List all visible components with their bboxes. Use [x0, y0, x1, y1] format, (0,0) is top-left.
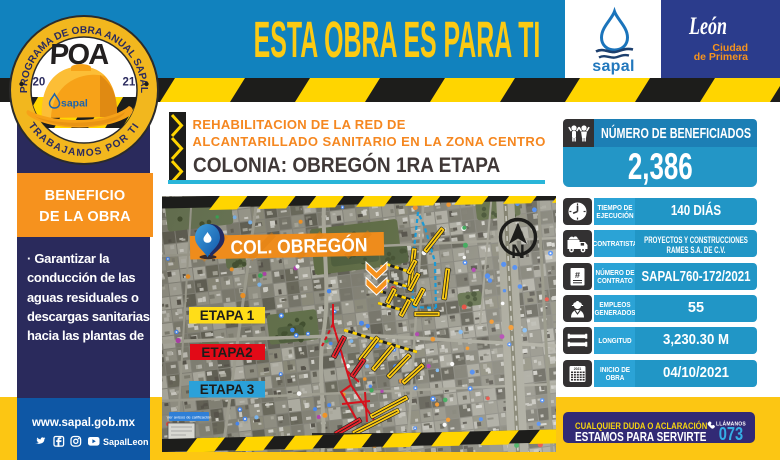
- svg-text:ETAPA 3: ETAPA 3: [200, 382, 255, 397]
- svg-text:21: 21: [123, 77, 136, 89]
- svg-text:ETAPA2: ETAPA2: [201, 345, 252, 360]
- svg-text:#: #: [575, 271, 581, 281]
- svg-text:N: N: [511, 242, 525, 263]
- svg-text:sapal: sapal: [592, 58, 634, 75]
- svg-text:COL. OBREGÓN: COL. OBREGÓN: [230, 233, 367, 258]
- svg-text:ETAPA 1: ETAPA 1: [200, 308, 255, 323]
- svg-text:20: 20: [33, 77, 46, 89]
- svg-text:SapalLeon: SapalLeon: [103, 437, 149, 447]
- svg-text:073: 073: [719, 423, 743, 442]
- svg-text:sapal: sapal: [61, 98, 88, 110]
- svg-text:Ver avisos de calificación: Ver avisos de calificación: [167, 415, 212, 420]
- svg-text:2021: 2021: [574, 366, 582, 370]
